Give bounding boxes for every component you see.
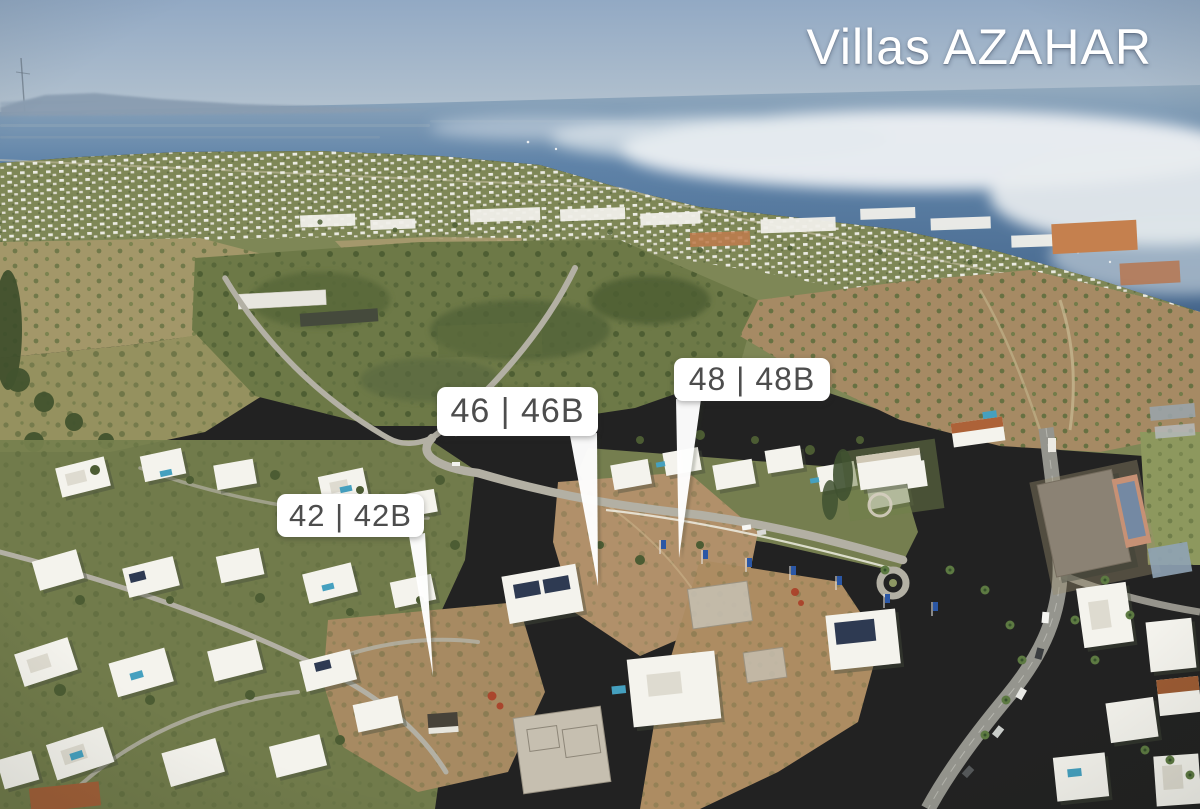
plot-callout-46: 46 | 46B	[437, 387, 598, 436]
vignette	[0, 0, 1200, 809]
plot-callout-48-label: 48 | 48B	[689, 361, 816, 398]
aerial-photo-scene	[0, 0, 1200, 809]
plot-callout-46-label: 46 | 46B	[450, 392, 584, 431]
brand-title: Villas AZAHAR	[806, 20, 1152, 75]
aerial-photo: Villas AZAHAR 42 | 42B 46 | 46B 48 | 48B	[0, 0, 1200, 809]
plot-callout-48: 48 | 48B	[674, 358, 830, 401]
plot-callout-42: 42 | 42B	[277, 494, 424, 537]
plot-callout-42-label: 42 | 42B	[289, 498, 412, 534]
